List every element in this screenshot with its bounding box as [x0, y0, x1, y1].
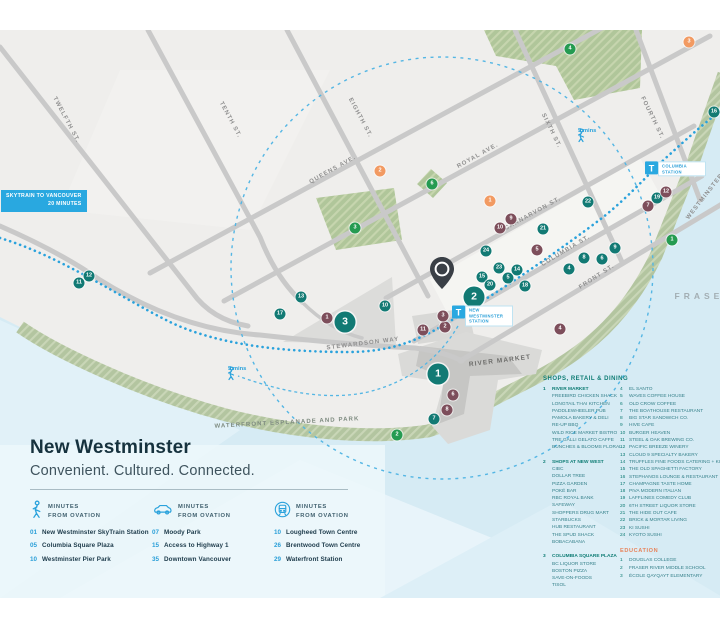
shops-legend-groups: 1RIVER MARKETFREEBIRD CHICKEN SHACKLONGT… — [543, 386, 627, 590]
legend-item-name: CIBC — [552, 466, 563, 473]
legend-item-indent — [543, 466, 552, 473]
legend-item-name: PADDLEWHEELER PUB — [552, 408, 606, 415]
minutes-item-label: Brentwood Town Centre — [286, 542, 360, 549]
legend-place: 23KI SUSHI — [620, 525, 720, 532]
marker-number: 16 — [711, 109, 717, 115]
legend-item-indent — [543, 582, 552, 589]
map-marker-park-1: 1 — [667, 235, 678, 246]
legend-place-name: WAVES COFFEE HOUSE — [629, 393, 685, 400]
legend-item-indent — [543, 444, 552, 451]
legend-item: BOSTON PIZZA — [543, 568, 627, 575]
marker-number: 8 — [582, 255, 585, 261]
minutes-item-label: Waterfront Station — [286, 556, 343, 563]
divider — [30, 489, 348, 490]
minutes-item: 26Brentwood Town Centre — [274, 542, 396, 549]
legend-item: PIZZA GARDEN — [543, 481, 627, 488]
legend-place-number: 10 — [620, 430, 629, 437]
map-marker-poi-6: 6 — [448, 390, 459, 401]
marker-number: 8 — [445, 407, 448, 413]
legend-place: 9HIVE CAFE — [620, 422, 720, 429]
minutes-item: 35Downtown Vancouver — [152, 556, 274, 563]
map-marker-shop-20: 20 — [485, 280, 496, 291]
marker-number: 9 — [613, 245, 616, 251]
marker-number: 1 — [435, 369, 441, 380]
map-marker-poi-2: 2 — [440, 322, 451, 333]
minutes-column-header: MINUTESFROM OVATION — [274, 501, 396, 523]
minutes-item: 05Columbia Square Plaza — [30, 542, 152, 549]
map-marker-poi-4: 4 — [555, 324, 566, 335]
minutes-item: 10Lougheed Town Centre — [274, 529, 396, 536]
skytrain-to-vancouver-badge: SKYTRAIN TO VANCOUVER 20 MINUTES — [1, 190, 87, 212]
legend-item-name: RBC ROYAL BANK — [552, 495, 594, 502]
legend-place: 7THE BOATHOUSE RESTAURANT — [620, 408, 720, 415]
legend-place-number: 7 — [620, 408, 629, 415]
map-marker-shop-13: 13 — [296, 292, 307, 303]
legend-item-indent — [543, 401, 552, 408]
marker-number: 12 — [663, 189, 669, 195]
minutes-header-line2: FROM OVATION — [178, 512, 231, 521]
marker-number: 12 — [86, 273, 92, 279]
page-title: New Westminster — [30, 437, 255, 459]
legend-item-indent — [543, 517, 552, 524]
marker-number: 15 — [479, 274, 485, 280]
legend-item-name: TISOL — [552, 582, 566, 589]
map-marker-edu-2: 2 — [375, 166, 386, 177]
marker-number: 5 — [535, 247, 538, 253]
map-marker-shop-8: 8 — [579, 253, 590, 264]
legend-place-name: BURGER HEAVEN — [629, 430, 670, 437]
marker-number: 21 — [540, 226, 546, 232]
education-item-name: DOUGLAS COLLEGE — [629, 557, 676, 565]
minutes-item: 29Waterfront Station — [274, 556, 396, 563]
legend-place-name: KI SUSHI — [629, 525, 650, 532]
legend-place-name: THE BOATHOUSE RESTAURANT — [629, 408, 703, 415]
minutes-column-header: MINUTESFROM OVATION — [152, 501, 274, 523]
legend-place-number: 23 — [620, 525, 629, 532]
legend-place-number: 14 — [620, 459, 629, 466]
legend-item: POKÉ BAR — [543, 488, 627, 495]
legend-item-indent — [543, 481, 552, 488]
map-marker-shop-14: 14 — [512, 265, 523, 276]
map-marker-shop-1: 1 — [428, 364, 449, 385]
marker-number: 20 — [487, 282, 493, 288]
legend-item-name: BOSTON PIZZA — [552, 568, 587, 575]
legend-place-name: BRICK & MORTAR LIVING — [629, 517, 687, 524]
legend-item-name: STARBUCKS — [552, 517, 581, 524]
legend-item-name: SAVE-ON-FOODS — [552, 575, 592, 582]
marker-number: 2 — [395, 432, 398, 438]
legend-item: SHOPPERS DRUG MART — [543, 510, 627, 517]
minutes-item: 10Westminster Pier Park — [30, 556, 152, 563]
station-badge-new-westminster-station: TNEW WESTMINSTER STATION — [452, 305, 513, 326]
legend-place-number: 8 — [620, 415, 629, 422]
marker-number: 14 — [514, 267, 520, 273]
legend-item-indent — [543, 532, 552, 539]
minutes-item-number: 26 — [274, 542, 286, 549]
legend-item-indent — [543, 437, 552, 444]
station-label: NEW WESTMINSTER STATION — [465, 305, 513, 326]
minutes-item-label: Access to Highway 1 — [164, 542, 229, 549]
legend-item-indent — [543, 568, 552, 575]
marker-number: 24 — [483, 248, 489, 254]
map-marker-poi-7: 7 — [643, 201, 654, 212]
legend-item: FREEBIRD CHICKEN SHACK — [543, 393, 627, 400]
legend-place-number: 20 — [620, 503, 629, 510]
marker-number: 1 — [488, 198, 491, 204]
legend-place: 5WAVES COFFEE HOUSE — [620, 393, 720, 400]
education-legend: EDUCATION 1DOUGLAS COLLEGE2FRASER RIVER … — [620, 548, 720, 581]
legend-item-name: WILD RICE MARKET BISTRO — [552, 430, 617, 437]
legend-item-indent — [543, 502, 552, 509]
minutes-item: 07Moody Park — [152, 529, 274, 536]
legend-item-indent — [543, 561, 552, 568]
legend-item-name: RE-UP BBQ — [552, 422, 578, 429]
title-block: New Westminster Convenient. Cultured. Co… — [30, 437, 255, 479]
minutes-header-text: MINUTESFROM OVATION — [48, 503, 101, 520]
map-marker-edu-1: 1 — [485, 196, 496, 207]
legend-place-name: CHAMPAGNE TASTE HOME — [629, 481, 692, 488]
legend-item-name: BC LIQUOR STORE — [552, 561, 596, 568]
legend-place: 24KYOTO SUSHI — [620, 532, 720, 539]
legend-item: TISOL — [543, 582, 627, 589]
walk-icon — [30, 500, 43, 524]
map-marker-shop-3: 3 — [335, 312, 356, 333]
legend-place: 12PACIFIC BREEZE WINERY — [620, 444, 720, 451]
legend-group-name: COLUMBIA SQUARE PLAZA — [552, 553, 617, 560]
marker-number: 6 — [430, 181, 433, 187]
map-marker-shop-11: 11 — [74, 278, 85, 289]
legend-place-number: 24 — [620, 532, 629, 539]
minutes-column-car: MINUTESFROM OVATION07Moody Park15Access … — [152, 501, 274, 563]
legend-place-name: STEEL & OAK BREWING CO. — [629, 437, 694, 444]
legend-item: CIBC — [543, 466, 627, 473]
map-marker-shop-23: 23 — [494, 263, 505, 274]
legend-place-number: 17 — [620, 481, 629, 488]
minutes-item-label: Lougheed Town Centre — [286, 529, 358, 536]
legend-item-indent — [543, 539, 552, 546]
legend-item-name: BOBACABANA — [552, 539, 585, 546]
education-item-name: ÉCOLE QAYQAYT ELEMENTARY — [629, 573, 702, 581]
minutes-item-label: Columbia Square Plaza — [42, 542, 114, 549]
shops-legend-places: 4EL SANTO5WAVES COFFEE HOUSE6OLD CROW CO… — [620, 386, 720, 539]
transit-t-icon: T — [452, 305, 465, 318]
marker-number: 13 — [298, 294, 304, 300]
legend-item-name: HUB RESTAURANT — [552, 524, 596, 531]
minutes-item-label: New Westminster SkyTrain Station — [42, 529, 149, 536]
legend-item-indent — [543, 510, 552, 517]
minutes-column-train: MINUTESFROM OVATION10Lougheed Town Centr… — [274, 501, 396, 563]
legend-place: 6OLD CROW COFFEE — [620, 401, 720, 408]
car-icon — [152, 503, 173, 521]
legend-place: 4EL SANTO — [620, 386, 720, 393]
legend-place-number: 19 — [620, 495, 629, 502]
legend-place-name: OLD CROW COFFEE — [629, 401, 676, 408]
marker-number: 11 — [420, 327, 426, 333]
legend-item-name: PAMOLA BAKERY & DELI — [552, 415, 609, 422]
minutes-column-header: MINUTESFROM OVATION — [30, 501, 152, 523]
legend-item-name: SAFEWAY — [552, 502, 575, 509]
marker-number: 19 — [654, 195, 660, 201]
map-marker-shop-2: 2 — [464, 287, 485, 308]
legend-place-number: 18 — [620, 488, 629, 495]
marker-number: 4 — [568, 46, 571, 52]
legend-place: 21THE HIDE OUT CAFE — [620, 510, 720, 517]
legend-place-name: HIVE CAFE — [629, 422, 654, 429]
legend-place-name: EL SANTO — [629, 386, 652, 393]
map-marker-shop-7: 7 — [429, 414, 440, 425]
legend-item: WILD RICE MARKET BISTRO — [543, 430, 627, 437]
legend-item: BUNCHES & BLOOMS FLORAL — [543, 444, 627, 451]
education-item-number: 2 — [620, 565, 629, 573]
legend-item: TRE GALLI GELATO CAFFE — [543, 437, 627, 444]
legend-item-indent — [543, 415, 552, 422]
legend-item-name: LONGTAIL THAI KITCHEN — [552, 401, 610, 408]
legend-item-indent — [543, 408, 552, 415]
legend-item: DOLLAR TREE — [543, 473, 627, 480]
legend-item: STARBUCKS — [543, 517, 627, 524]
minutes-item-label: Moody Park — [164, 529, 201, 536]
legend-item: RE-UP BBQ — [543, 422, 627, 429]
marker-number: 6 — [451, 392, 454, 398]
legend-place: 8BIG STAR SANDWICH CO. — [620, 415, 720, 422]
legend-place-name: CLOUD 9 SPECIALTY BAKERY — [629, 452, 698, 459]
map-marker-poi-10: 10 — [495, 223, 506, 234]
minutes-item: 15Access to Highway 1 — [152, 542, 274, 549]
legend-place: 15THE OLD SPAGHETTI FACTORY — [620, 466, 720, 473]
legend-item: BOBACABANA — [543, 539, 627, 546]
marker-number: 7 — [646, 203, 649, 209]
legend-item-name: POKÉ BAR — [552, 488, 577, 495]
legend-item: PADDLEWHEELER PUB — [543, 408, 627, 415]
map-marker-shop-24: 24 — [481, 246, 492, 257]
legend-place-name: PIVA MODERN ITALIAN — [629, 488, 681, 495]
station-label: COLUMBIA STATION — [658, 161, 706, 176]
map-marker-park-4: 4 — [565, 44, 576, 55]
map-marker-poi-8: 8 — [442, 405, 453, 416]
marker-number: 22 — [585, 199, 591, 205]
education-item-number: 1 — [620, 557, 629, 565]
marker-number: 23 — [496, 265, 502, 271]
legend-place: 16STEPHANOS LOUNGE & RESTAURANT — [620, 474, 720, 481]
legend-place-number: 5 — [620, 393, 629, 400]
legend-place: 17CHAMPAGNE TASTE HOME — [620, 481, 720, 488]
transit-t-icon: T — [645, 161, 658, 174]
legend-group-number: 2 — [543, 459, 552, 466]
legend-place-number: 9 — [620, 422, 629, 429]
marker-number: 7 — [432, 416, 435, 422]
map-marker-shop-6: 6 — [597, 254, 608, 265]
marker-number: 1 — [325, 315, 328, 321]
legend-item-indent — [543, 495, 552, 502]
legend-place: 22BRICK & MORTAR LIVING — [620, 517, 720, 524]
minutes-item-number: 07 — [152, 529, 164, 536]
legend-group-name: RIVER MARKET — [552, 386, 589, 393]
minutes-item: 01New Westminster SkyTrain Station — [30, 529, 152, 536]
map-marker-shop-18: 18 — [520, 281, 531, 292]
legend-place: 14TRUFFLES FINE FOODS CATERING + KITCHEN… — [620, 459, 720, 466]
map-marker-shop-17: 17 — [275, 309, 286, 320]
legend-place: 11STEEL & OAK BREWING CO. — [620, 437, 720, 444]
marker-number: 3 — [353, 225, 356, 231]
legend-place-number: 16 — [620, 474, 629, 481]
legend-group-number: 3 — [543, 553, 552, 560]
legend-group-header: 3COLUMBIA SQUARE PLAZA — [543, 553, 627, 560]
map-marker-poi-1: 1 — [322, 313, 333, 324]
marker-number: 4 — [558, 326, 561, 332]
minutes-item-number: 29 — [274, 556, 286, 563]
marker-number: 4 — [567, 266, 570, 272]
legend-group-number: 1 — [543, 386, 552, 393]
map-marker-shop-16: 16 — [709, 107, 720, 118]
legend-place-name: BIG STAR SANDWICH CO. — [629, 415, 688, 422]
map-marker-poi-3: 3 — [438, 311, 449, 322]
page-subtitle: Convenient. Cultured. Connected. — [30, 463, 255, 479]
minutes-item-number: 01 — [30, 529, 42, 536]
legend-item-name: DOLLAR TREE — [552, 473, 585, 480]
map-marker-shop-10: 10 — [380, 301, 391, 312]
legend-item-name: PIZZA GARDEN — [552, 481, 587, 488]
minutes-item-number: 10 — [30, 556, 42, 563]
legend-item-name: THE SPUD SHACK — [552, 532, 594, 539]
education-item: 3ÉCOLE QAYQAYT ELEMENTARY — [620, 573, 720, 581]
map-marker-park-6: 6 — [427, 179, 438, 190]
legend-place-number: 11 — [620, 437, 629, 444]
legend-item: RBC ROYAL BANK — [543, 495, 627, 502]
marker-number: 5 — [506, 275, 509, 281]
marker-number: 2 — [471, 292, 477, 303]
map-marker-shop-12: 12 — [84, 271, 95, 282]
legend-place: 19LAFFLINES COMEDY CLUB — [620, 495, 720, 502]
marker-number: 9 — [509, 216, 512, 222]
minutes-item-label: Downtown Vancouver — [164, 556, 231, 563]
marker-number: 3 — [687, 39, 690, 45]
map-marker-park-2: 2 — [392, 430, 403, 441]
marker-number: 11 — [76, 280, 82, 286]
legend-place-name: LAFFLINES COMEDY CLUB — [629, 495, 691, 502]
map-marker-poi-9: 9 — [506, 214, 517, 225]
map-marker-shop-9: 9 — [610, 243, 621, 254]
map-marker-shop-21: 21 — [538, 224, 549, 235]
legend-place: 18PIVA MODERN ITALIAN — [620, 488, 720, 495]
minutes-from-ovation-columns: MINUTESFROM OVATION01New Westminster Sky… — [30, 501, 396, 563]
legend-item-name: FREEBIRD CHICKEN SHACK — [552, 393, 617, 400]
legend-item-indent — [543, 393, 552, 400]
marker-number: 6 — [600, 256, 603, 262]
minutes-item-number: 15 — [152, 542, 164, 549]
legend-item: THE SPUD SHACK — [543, 532, 627, 539]
legend-place-name: PACIFIC BREEZE WINERY — [629, 444, 689, 451]
legend-place-number: 22 — [620, 517, 629, 524]
legend-place-number: 12 — [620, 444, 629, 451]
marker-number: 3 — [342, 317, 348, 328]
minutes-item-number: 35 — [152, 556, 164, 563]
minutes-header-line2: FROM OVATION — [296, 512, 349, 521]
map-marker-shop-4: 4 — [564, 264, 575, 275]
skytrain-badge-line1: SKYTRAIN TO VANCOUVER — [6, 193, 82, 201]
marker-number: 10 — [382, 303, 388, 309]
legend-item: SAVE-ON-FOODS — [543, 575, 627, 582]
minutes-header-text: MINUTESFROM OVATION — [296, 503, 349, 520]
legend-place: 13CLOUD 9 SPECIALTY BAKERY — [620, 452, 720, 459]
marker-number: 17 — [277, 311, 283, 317]
legend-place: 206TH STREET LIQUOR STORE — [620, 503, 720, 510]
train-icon — [274, 501, 291, 523]
legend-item-indent — [543, 488, 552, 495]
education-item-name: FRASER RIVER MIDDLE SCHOOL — [629, 565, 706, 573]
legend-place-name: TRUFFLES FINE FOODS CATERING + KITCHENS — [629, 459, 720, 466]
legend-item-name: SHOPPERS DRUG MART — [552, 510, 609, 517]
legend-place-name: THE OLD SPAGHETTI FACTORY — [629, 466, 702, 473]
marker-number: 2 — [443, 324, 446, 330]
legend-place-name: THE HIDE OUT CAFE — [629, 510, 677, 517]
map-marker-poi-11: 11 — [418, 325, 429, 336]
education-item: 2FRASER RIVER MIDDLE SCHOOL — [620, 565, 720, 573]
marker-number: 3 — [441, 313, 444, 319]
legend-group-header: 2SHOPS AT NEW WEST — [543, 459, 627, 466]
legend-place-number: 13 — [620, 452, 629, 459]
station-badge-columbia-station: TCOLUMBIA STATION — [645, 161, 706, 176]
minutes-item-number: 05 — [30, 542, 42, 549]
minutes-header-line2: FROM OVATION — [48, 512, 101, 521]
minutes-column-walk: MINUTESFROM OVATION01New Westminster Sky… — [30, 501, 152, 563]
shops-legend-title: SHOPS, RETAIL & DINING — [543, 376, 628, 382]
legend-place-name: KYOTO SUSHI — [629, 532, 662, 539]
legend-place-number: 4 — [620, 386, 629, 393]
marker-number: 18 — [522, 283, 528, 289]
legend-place: 10BURGER HEAVEN — [620, 430, 720, 437]
minutes-item-label: Westminster Pier Park — [42, 556, 111, 563]
skytrain-badge-line2: 20 MINUTES — [6, 201, 82, 209]
education-legend-title: EDUCATION — [620, 548, 720, 554]
marker-number: 10 — [497, 225, 503, 231]
new-westminster-map-page: { "palette":{"shop":"#127a74","poi":"#7d… — [0, 0, 720, 630]
map-marker-shop-5: 5 — [503, 273, 514, 284]
legend-item-indent — [543, 575, 552, 582]
legend-item-indent — [543, 430, 552, 437]
map-marker-shop-22: 22 — [583, 197, 594, 208]
legend-place-name: 6TH STREET LIQUOR STORE — [629, 503, 696, 510]
legend-item: SAFEWAY — [543, 502, 627, 509]
education-item-number: 3 — [620, 573, 629, 581]
legend-item-indent — [543, 473, 552, 480]
legend-place-number: 15 — [620, 466, 629, 473]
legend-place-name: STEPHANOS LOUNGE & RESTAURANT — [629, 474, 718, 481]
map-marker-poi-12: 12 — [661, 187, 672, 198]
legend-item-name: TRE GALLI GELATO CAFFE — [552, 437, 614, 444]
minutes-header-line1: MINUTES — [178, 503, 231, 512]
legend-group-name: SHOPS AT NEW WEST — [552, 459, 604, 466]
legend-item-indent — [543, 422, 552, 429]
map-marker-poi-5: 5 — [532, 245, 543, 256]
marker-number: 1 — [670, 237, 673, 243]
legend-item-name: BUNCHES & BLOOMS FLORAL — [552, 444, 622, 451]
legend-place-number: 6 — [620, 401, 629, 408]
legend-item: PAMOLA BAKERY & DELI — [543, 415, 627, 422]
legend-item: HUB RESTAURANT — [543, 524, 627, 531]
marker-number: 2 — [378, 168, 381, 174]
map-marker-park-3: 3 — [350, 223, 361, 234]
minutes-header-text: MINUTESFROM OVATION — [178, 503, 231, 520]
legend-item: BC LIQUOR STORE — [543, 561, 627, 568]
education-item: 1DOUGLAS COLLEGE — [620, 557, 720, 565]
legend-place-number: 21 — [620, 510, 629, 517]
legend-item-indent — [543, 524, 552, 531]
legend-item: LONGTAIL THAI KITCHEN — [543, 401, 627, 408]
map-marker-edu-3: 3 — [684, 37, 695, 48]
walk-time-indicator: 5 mins — [226, 366, 246, 372]
minutes-item-number: 10 — [274, 529, 286, 536]
minutes-header-line1: MINUTES — [296, 503, 349, 512]
